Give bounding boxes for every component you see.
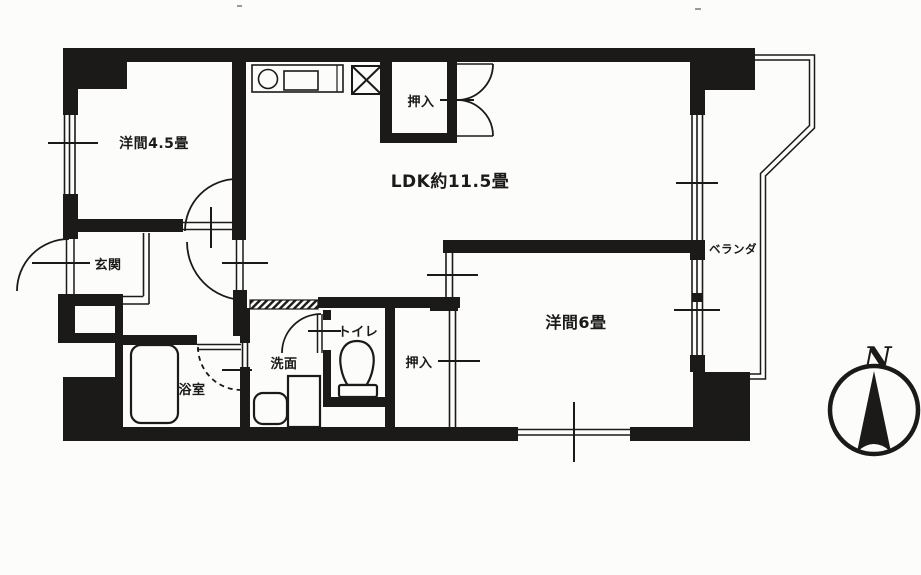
wall-bottom-west <box>63 427 518 441</box>
entry-step <box>123 233 149 304</box>
wall-pillar-se <box>693 372 750 437</box>
wall-shoe-pocket-bottom <box>58 333 123 343</box>
wall-room45-east <box>232 62 246 240</box>
wall-room45-south <box>63 219 183 232</box>
kitchen-sink <box>259 70 278 89</box>
wash-basin <box>254 393 287 424</box>
label-veranda: ベランダ <box>709 242 757 256</box>
wall-top <box>63 48 755 62</box>
wall-washroom-toilet-divider <box>323 350 331 398</box>
label-ldk: LDK約11.5畳 <box>391 171 510 192</box>
kitchen <box>252 65 381 94</box>
wall-slider-junction-block <box>430 297 458 311</box>
wall-left-mid <box>63 194 78 239</box>
wall-toilet-south <box>323 397 385 407</box>
wall-corner-ne <box>690 48 755 90</box>
toilet-bowl <box>339 341 377 397</box>
compass-north-label: N <box>863 341 893 376</box>
wall-right-upper <box>690 90 705 115</box>
wall-hall-bath <box>123 335 197 345</box>
wall-ldk-room6-divider <box>443 240 700 253</box>
label-western-room-4-5: 洋間4.5畳 <box>119 135 189 152</box>
balcony-railing <box>703 55 815 379</box>
compass: N <box>830 341 918 454</box>
bathtub <box>131 345 178 423</box>
wall-closet-top-east <box>447 62 457 133</box>
door-washroom-folding <box>250 300 318 309</box>
floor-plan-page: N 洋間4.5畳 LDK約11.5畳 押入 ベランダ 洋間6畳 玄関 浴室 洗面… <box>0 0 921 575</box>
label-closet-top: 押入 <box>407 94 434 110</box>
window-room45-west <box>65 115 76 194</box>
label-western-room-6: 洋間6畳 <box>545 313 606 332</box>
floor-plan-drawing: N 洋間4.5畳 LDK約11.5畳 押入 ベランダ 洋間6畳 玄関 浴室 洗面… <box>0 0 921 575</box>
fusuma-closet-bottom <box>450 308 456 427</box>
compass-needle-icon <box>857 371 891 452</box>
wall-toilet-east <box>385 308 395 427</box>
wall-washroom-toilet-divider-stub <box>323 310 331 320</box>
door-entry <box>17 239 74 294</box>
door-toilet <box>282 314 322 353</box>
wall-left-upper <box>63 62 78 115</box>
refrigerator-space <box>352 66 381 94</box>
wall-washroom-west-upper <box>240 308 250 343</box>
wall-shoe-pocket-right <box>115 294 123 344</box>
sliding-doors <box>446 253 456 427</box>
sanitary-fixtures <box>131 341 377 427</box>
window-bath-washroom <box>243 343 248 367</box>
wall-shoe-pocket-left <box>58 306 75 334</box>
scan-artifacts <box>237 5 701 10</box>
label-bathroom: 浴室 <box>178 382 205 398</box>
label-toilet: トイレ <box>338 325 379 340</box>
wall-closet-top-south <box>380 133 457 143</box>
wall-washroom-west-lower <box>240 367 250 427</box>
label-washroom: 洗面 <box>270 356 297 372</box>
washing-machine-space <box>288 376 320 427</box>
stove <box>284 71 318 90</box>
label-closet-bottom: 押入 <box>405 355 432 371</box>
wall-entrance-south <box>58 294 123 306</box>
label-entrance: 玄関 <box>94 257 121 273</box>
